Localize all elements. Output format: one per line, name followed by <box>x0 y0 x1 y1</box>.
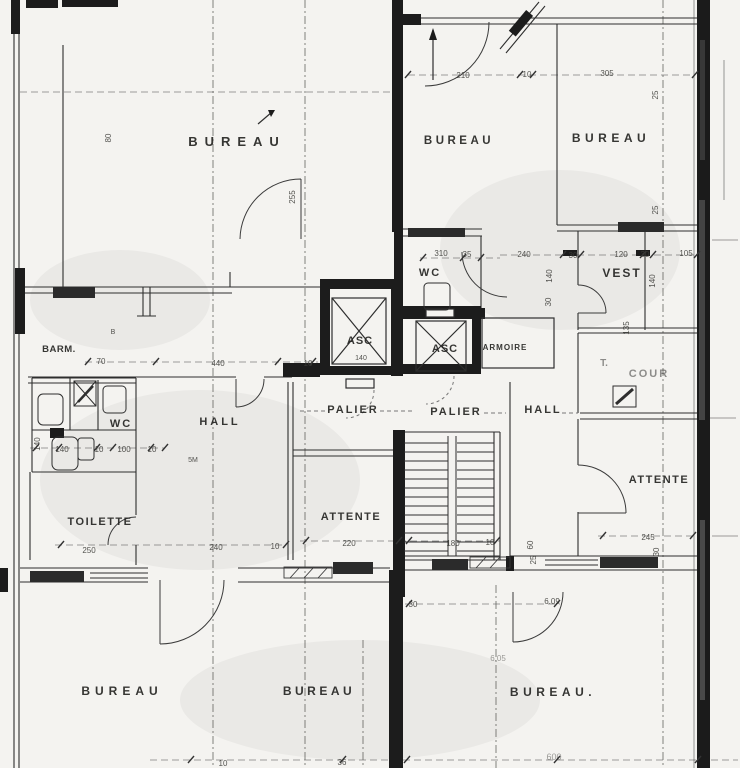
dimension-label: 245 <box>641 533 655 542</box>
dimension-label: 305 <box>600 69 614 78</box>
window-sill <box>600 557 658 568</box>
room-label-toilette: TOILETTE <box>68 516 133 528</box>
room-label-vest: VEST <box>602 266 641 280</box>
dimension-label: 25 <box>651 205 660 214</box>
dimension-label: 25 <box>529 555 538 564</box>
dimension-label: B <box>111 329 116 336</box>
dimension-label: 30 <box>569 251 578 260</box>
dimension-label: 25 <box>651 90 660 99</box>
elevator-shaft-left-wall <box>391 279 403 376</box>
outer-wall-right <box>697 0 710 768</box>
room-label-bureau-bottom-center: BUREAU <box>283 684 355 698</box>
dimension-label: 30 <box>652 547 661 556</box>
window-sill-top-left <box>26 0 58 8</box>
dimension-label: 250 <box>82 546 96 555</box>
elevator-shaft-left-wall <box>320 279 396 289</box>
window-sill <box>53 287 95 298</box>
room-label-asc-right: ASC <box>432 343 458 355</box>
dimension-label: 30 <box>409 600 418 609</box>
window-sill <box>618 222 664 232</box>
dimension-label: 10 <box>148 445 157 454</box>
window-sill <box>30 571 84 582</box>
dimension-label: 10 <box>271 542 280 551</box>
room-label-palier-left: PALIER <box>327 404 379 416</box>
center-spine-wall <box>392 0 403 232</box>
center-spine-wall <box>389 570 403 768</box>
dimension-label: 440 <box>211 359 225 368</box>
dimension-label: 70 <box>97 357 106 366</box>
dimension-label: 310 <box>434 249 448 258</box>
dimension-label: 60 <box>526 540 535 549</box>
elevator-shaft-left-wall <box>320 279 330 375</box>
room-label-attente-right: ATTENTE <box>629 474 689 486</box>
dimension-label: 10 <box>523 70 532 79</box>
dimension-label: 30 <box>544 297 553 306</box>
window-sill <box>408 228 465 237</box>
dimension-label: 140 <box>545 269 554 283</box>
wall-pier <box>15 268 25 334</box>
room-label-cour: COUR <box>629 368 669 380</box>
room-label-bureau-bottom-right: BUREAU. <box>510 685 596 699</box>
window-sill <box>432 559 468 570</box>
dimension-label: 140 <box>648 274 657 288</box>
dimension-label: 35 <box>463 250 472 259</box>
dimension-label: 100 <box>117 445 131 454</box>
dimension-label: 210 <box>456 71 470 80</box>
room-label-bureau-top-center: BUREAU <box>424 135 494 147</box>
dimension-label: 6.05 <box>490 654 506 663</box>
dimension-label: 140 <box>355 355 367 362</box>
room-label-wc-left: WC <box>110 418 132 430</box>
dimension-label: 135 <box>622 321 631 335</box>
room-label-armoire: ARMOIRE <box>483 343 528 352</box>
dimension-label: 240 <box>517 250 531 259</box>
room-label-cour-t: T. <box>600 358 608 369</box>
room-label-wc-center: WC <box>419 267 441 279</box>
wall-pier <box>11 0 20 34</box>
room-label-bureau-top-right: BUREAU <box>572 131 650 145</box>
window-sill <box>333 562 373 574</box>
dimension-label: 600 <box>546 752 561 762</box>
floor-plan-svg: BUREAUBUREAUBUREAUWCVESTASCASCARMOIREPAL… <box>0 0 740 768</box>
dimension-label: 140 <box>33 437 42 451</box>
elevator-shaft-left-wall <box>320 366 396 375</box>
dimension-label: 105 <box>679 249 693 258</box>
wall-pier <box>403 14 421 25</box>
dimension-label: 10 <box>486 538 495 547</box>
room-label-hall-right: HALL <box>524 404 561 416</box>
scanned-floor-plan-page: BUREAUBUREAUBUREAUWCVESTASCASCARMOIREPAL… <box>0 0 740 768</box>
room-label-palier-right: PALIER <box>430 406 482 418</box>
wall-pier <box>0 568 8 592</box>
dimension-label: 140 <box>55 445 69 454</box>
dimension-label: 30 <box>641 250 650 259</box>
dimension-label: 120 <box>614 250 628 259</box>
dimension-label: 255 <box>288 190 297 204</box>
dimension-label: 10 <box>95 445 104 454</box>
dimension-label: 5M <box>188 457 198 464</box>
dimension-label: 6.09 <box>544 597 560 606</box>
window-sill-top-left <box>62 0 118 7</box>
dimension-label: 36 <box>338 758 347 767</box>
wall-pier <box>283 363 320 377</box>
dimension-label: 10 <box>304 359 313 368</box>
dimension-label: 180 <box>446 539 460 548</box>
room-label-barm: BARM. <box>42 344 76 355</box>
room-label-bureau-top-left: BUREAU <box>188 134 286 149</box>
room-label-hall-left: HALL <box>199 416 240 428</box>
room-label-asc-left: ASC <box>347 335 373 347</box>
dimension-label: 220 <box>342 539 356 548</box>
dimension-label: 80 <box>104 133 113 142</box>
room-label-attente-center: ATTENTE <box>321 511 381 523</box>
dimension-label: 240 <box>209 543 223 552</box>
dimension-label: 10 <box>219 759 228 768</box>
room-label-bureau-bottom-left: BUREAU <box>81 684 162 698</box>
